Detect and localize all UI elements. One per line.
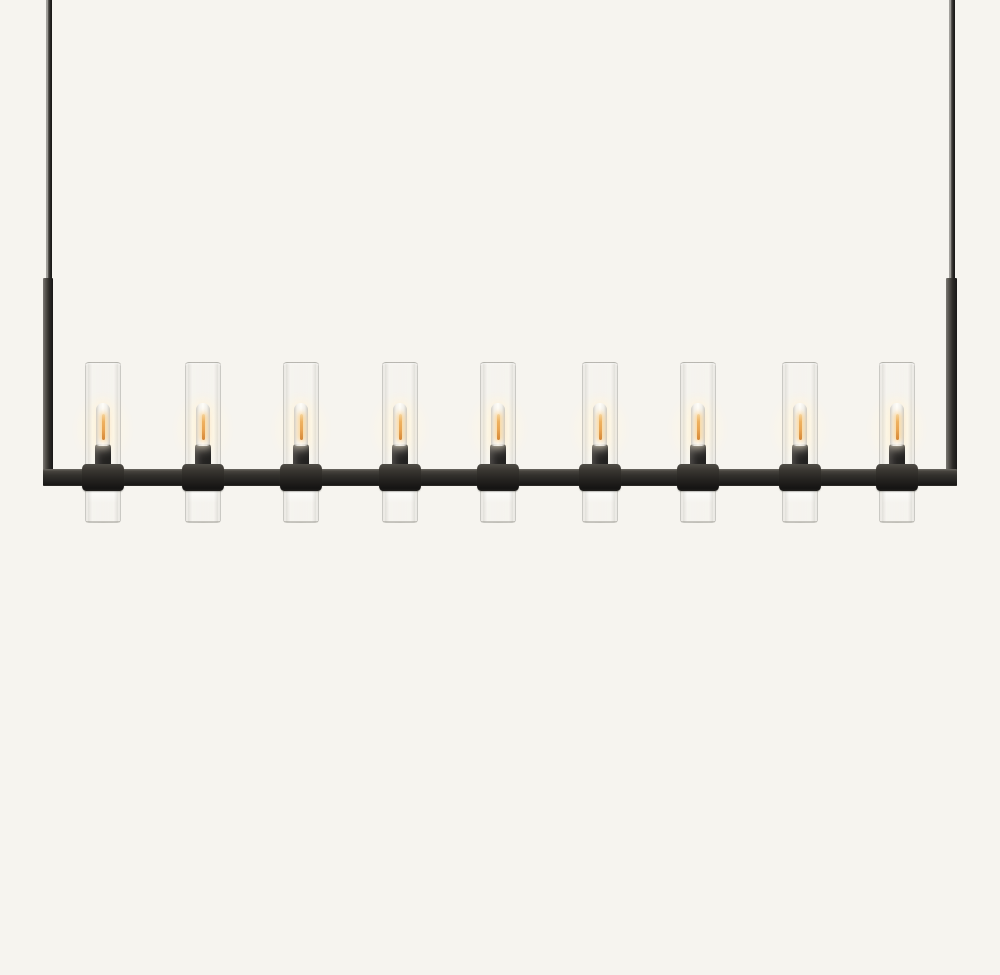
light-unit [779,362,821,523]
glass-cylinder-shade [480,362,516,523]
glass-cylinder-shade [680,362,716,523]
light-unit [876,362,918,523]
glass-cylinder-shade [185,362,221,523]
glass-cylinder-shade [582,362,618,523]
light-unit [677,362,719,523]
light-unit [82,362,124,523]
suspension-stem-left [43,278,53,486]
light-unit [579,362,621,523]
suspension-rod-right [949,0,955,281]
shade-holder-ring [182,464,224,491]
glass-cylinder-shade [382,362,418,523]
suspension-rod-left [46,0,52,281]
product-photo-linear-chandelier [0,0,1000,975]
glass-cylinder-shade [85,362,121,523]
shade-holder-ring [477,464,519,491]
shade-holder-ring [876,464,918,491]
glass-cylinder-shade [782,362,818,523]
suspension-stem-right [946,278,957,486]
shade-holder-ring [280,464,322,491]
shade-holder-ring [677,464,719,491]
glass-cylinder-shade [879,362,915,523]
shade-holder-ring [579,464,621,491]
shade-holder-ring [379,464,421,491]
light-unit [182,362,224,523]
glass-cylinder-shade [283,362,319,523]
light-unit [477,362,519,523]
shade-holder-ring [779,464,821,491]
shade-holder-ring [82,464,124,491]
light-unit [379,362,421,523]
light-unit [280,362,322,523]
